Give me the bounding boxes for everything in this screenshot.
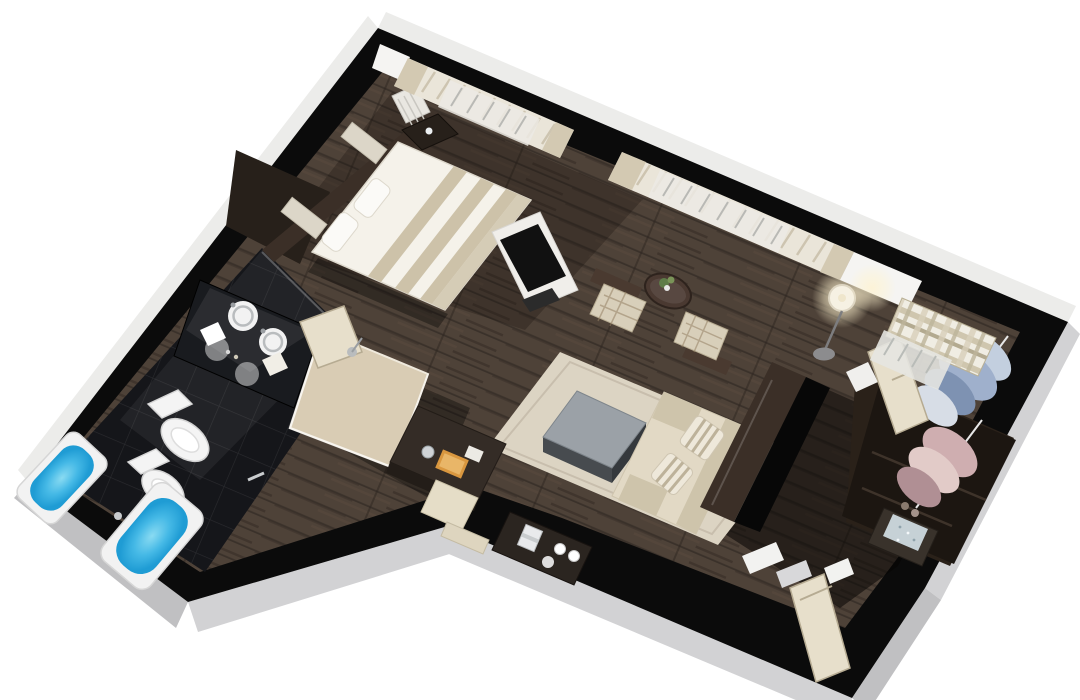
coffee-cup bbox=[569, 551, 580, 562]
shoe bbox=[901, 502, 909, 510]
shoe bbox=[911, 509, 919, 517]
lamp-base bbox=[813, 348, 835, 361]
vase bbox=[664, 285, 670, 291]
amenity-1 bbox=[226, 350, 230, 354]
sink-reflection-2 bbox=[235, 362, 259, 386]
faucet-left bbox=[231, 303, 236, 308]
tub-faucet bbox=[114, 512, 122, 520]
floor-plan-render bbox=[0, 0, 1080, 700]
amenity-2 bbox=[234, 355, 238, 359]
telephone bbox=[426, 128, 433, 135]
safe-speckle bbox=[913, 539, 916, 542]
plant-leaf bbox=[668, 277, 675, 284]
safe-speckle bbox=[899, 526, 902, 529]
desk-lamp bbox=[422, 446, 434, 458]
coffee-cup bbox=[555, 544, 566, 555]
safe-speckle bbox=[897, 539, 900, 542]
safe-speckle bbox=[907, 532, 910, 535]
faucet-right bbox=[261, 329, 266, 334]
lamp-bulb bbox=[838, 294, 846, 302]
floor-plan-page bbox=[0, 0, 1080, 700]
saucer bbox=[542, 556, 554, 568]
wall-glow bbox=[848, 264, 896, 312]
